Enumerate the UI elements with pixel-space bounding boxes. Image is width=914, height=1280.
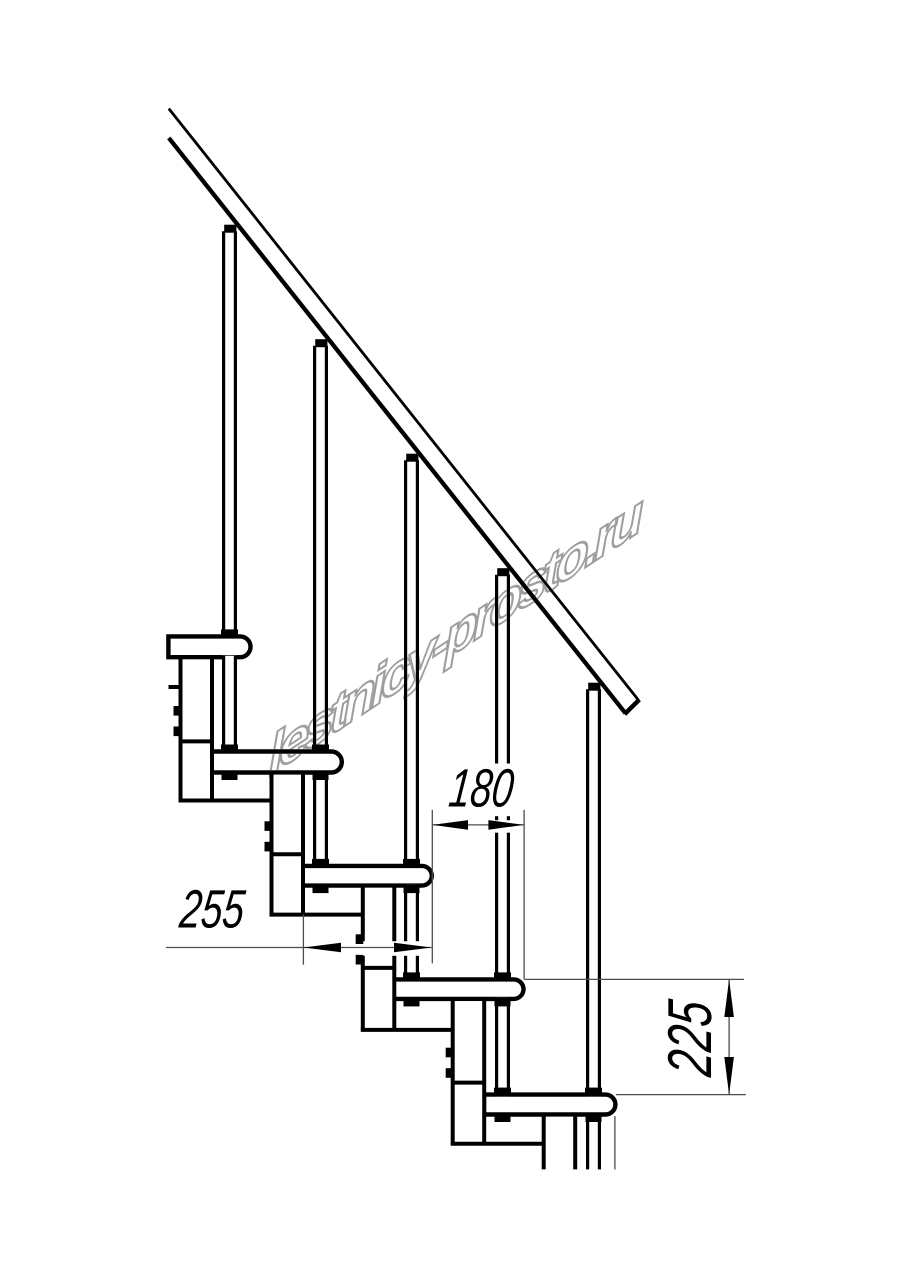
svg-text:255: 255 (176, 878, 248, 939)
svg-text:225: 225 (656, 996, 725, 1080)
svg-text:180: 180 (446, 757, 517, 818)
